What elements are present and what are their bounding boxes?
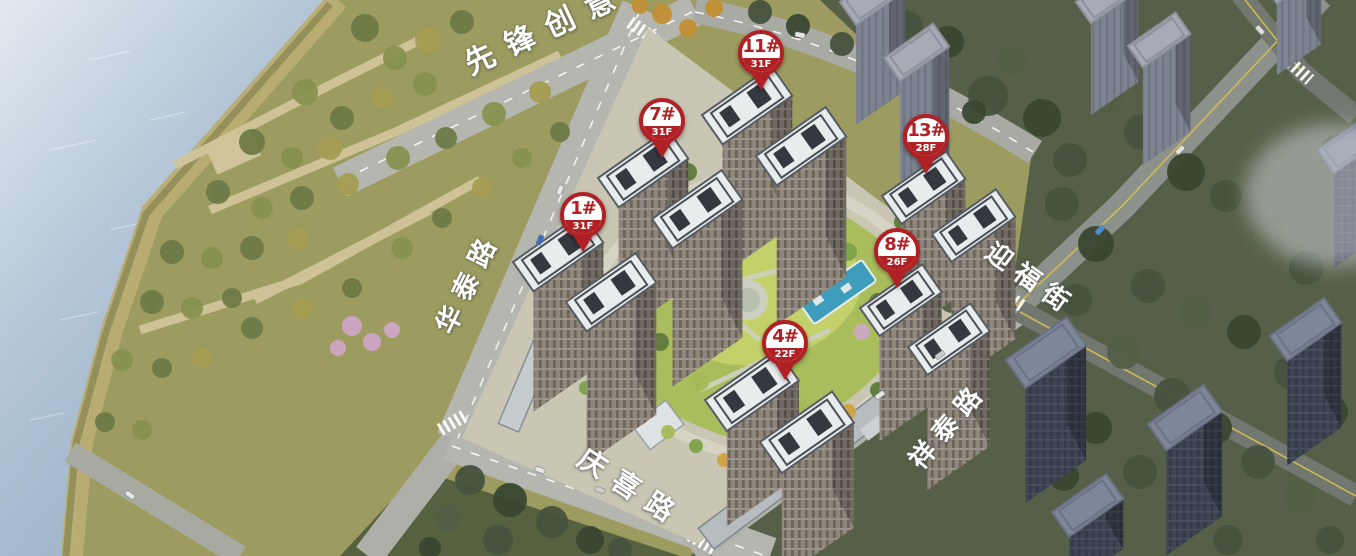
pin-circle: 11# 31F	[738, 30, 784, 76]
pin-tail-icon	[652, 141, 672, 158]
pin-circle: 13# 28F	[903, 114, 949, 160]
building-pin-11[interactable]: 11# 31F	[737, 30, 785, 90]
pin-circle: 7# 31F	[639, 98, 685, 144]
pin-building-number: 1#	[564, 196, 602, 220]
building-pin-13[interactable]: 13# 28F	[902, 114, 950, 174]
pin-tail-icon	[573, 235, 593, 252]
pin-floor-count: 26F	[878, 256, 916, 270]
pin-circle: 1# 31F	[560, 192, 606, 238]
pin-tail-icon	[751, 73, 771, 90]
pin-building-number: 8#	[878, 232, 916, 256]
pin-floor-count: 31F	[643, 126, 681, 140]
pin-tail-icon	[916, 157, 936, 174]
pin-floor-count: 31F	[564, 220, 602, 234]
pin-floor-count: 22F	[766, 348, 804, 362]
pin-floor-count: 28F	[907, 142, 945, 156]
building-pin-7[interactable]: 7# 31F	[638, 98, 686, 158]
building-pin-4[interactable]: 4# 22F	[761, 320, 809, 380]
aerial-site-map: 1# 31F 7# 31F 11# 31F 13# 28F 8#	[0, 0, 1356, 556]
pin-building-number: 4#	[766, 324, 804, 348]
pin-building-number: 13#	[907, 118, 945, 142]
pin-circle: 4# 22F	[762, 320, 808, 366]
pin-tail-icon	[887, 271, 907, 288]
aerial-render	[0, 0, 1356, 556]
pin-building-number: 11#	[742, 34, 780, 58]
pin-building-number: 7#	[643, 102, 681, 126]
pin-floor-count: 31F	[742, 58, 780, 72]
pin-circle: 8# 26F	[874, 228, 920, 274]
building-pin-1[interactable]: 1# 31F	[559, 192, 607, 252]
building-pin-8[interactable]: 8# 26F	[873, 228, 921, 288]
pin-tail-icon	[775, 363, 795, 380]
